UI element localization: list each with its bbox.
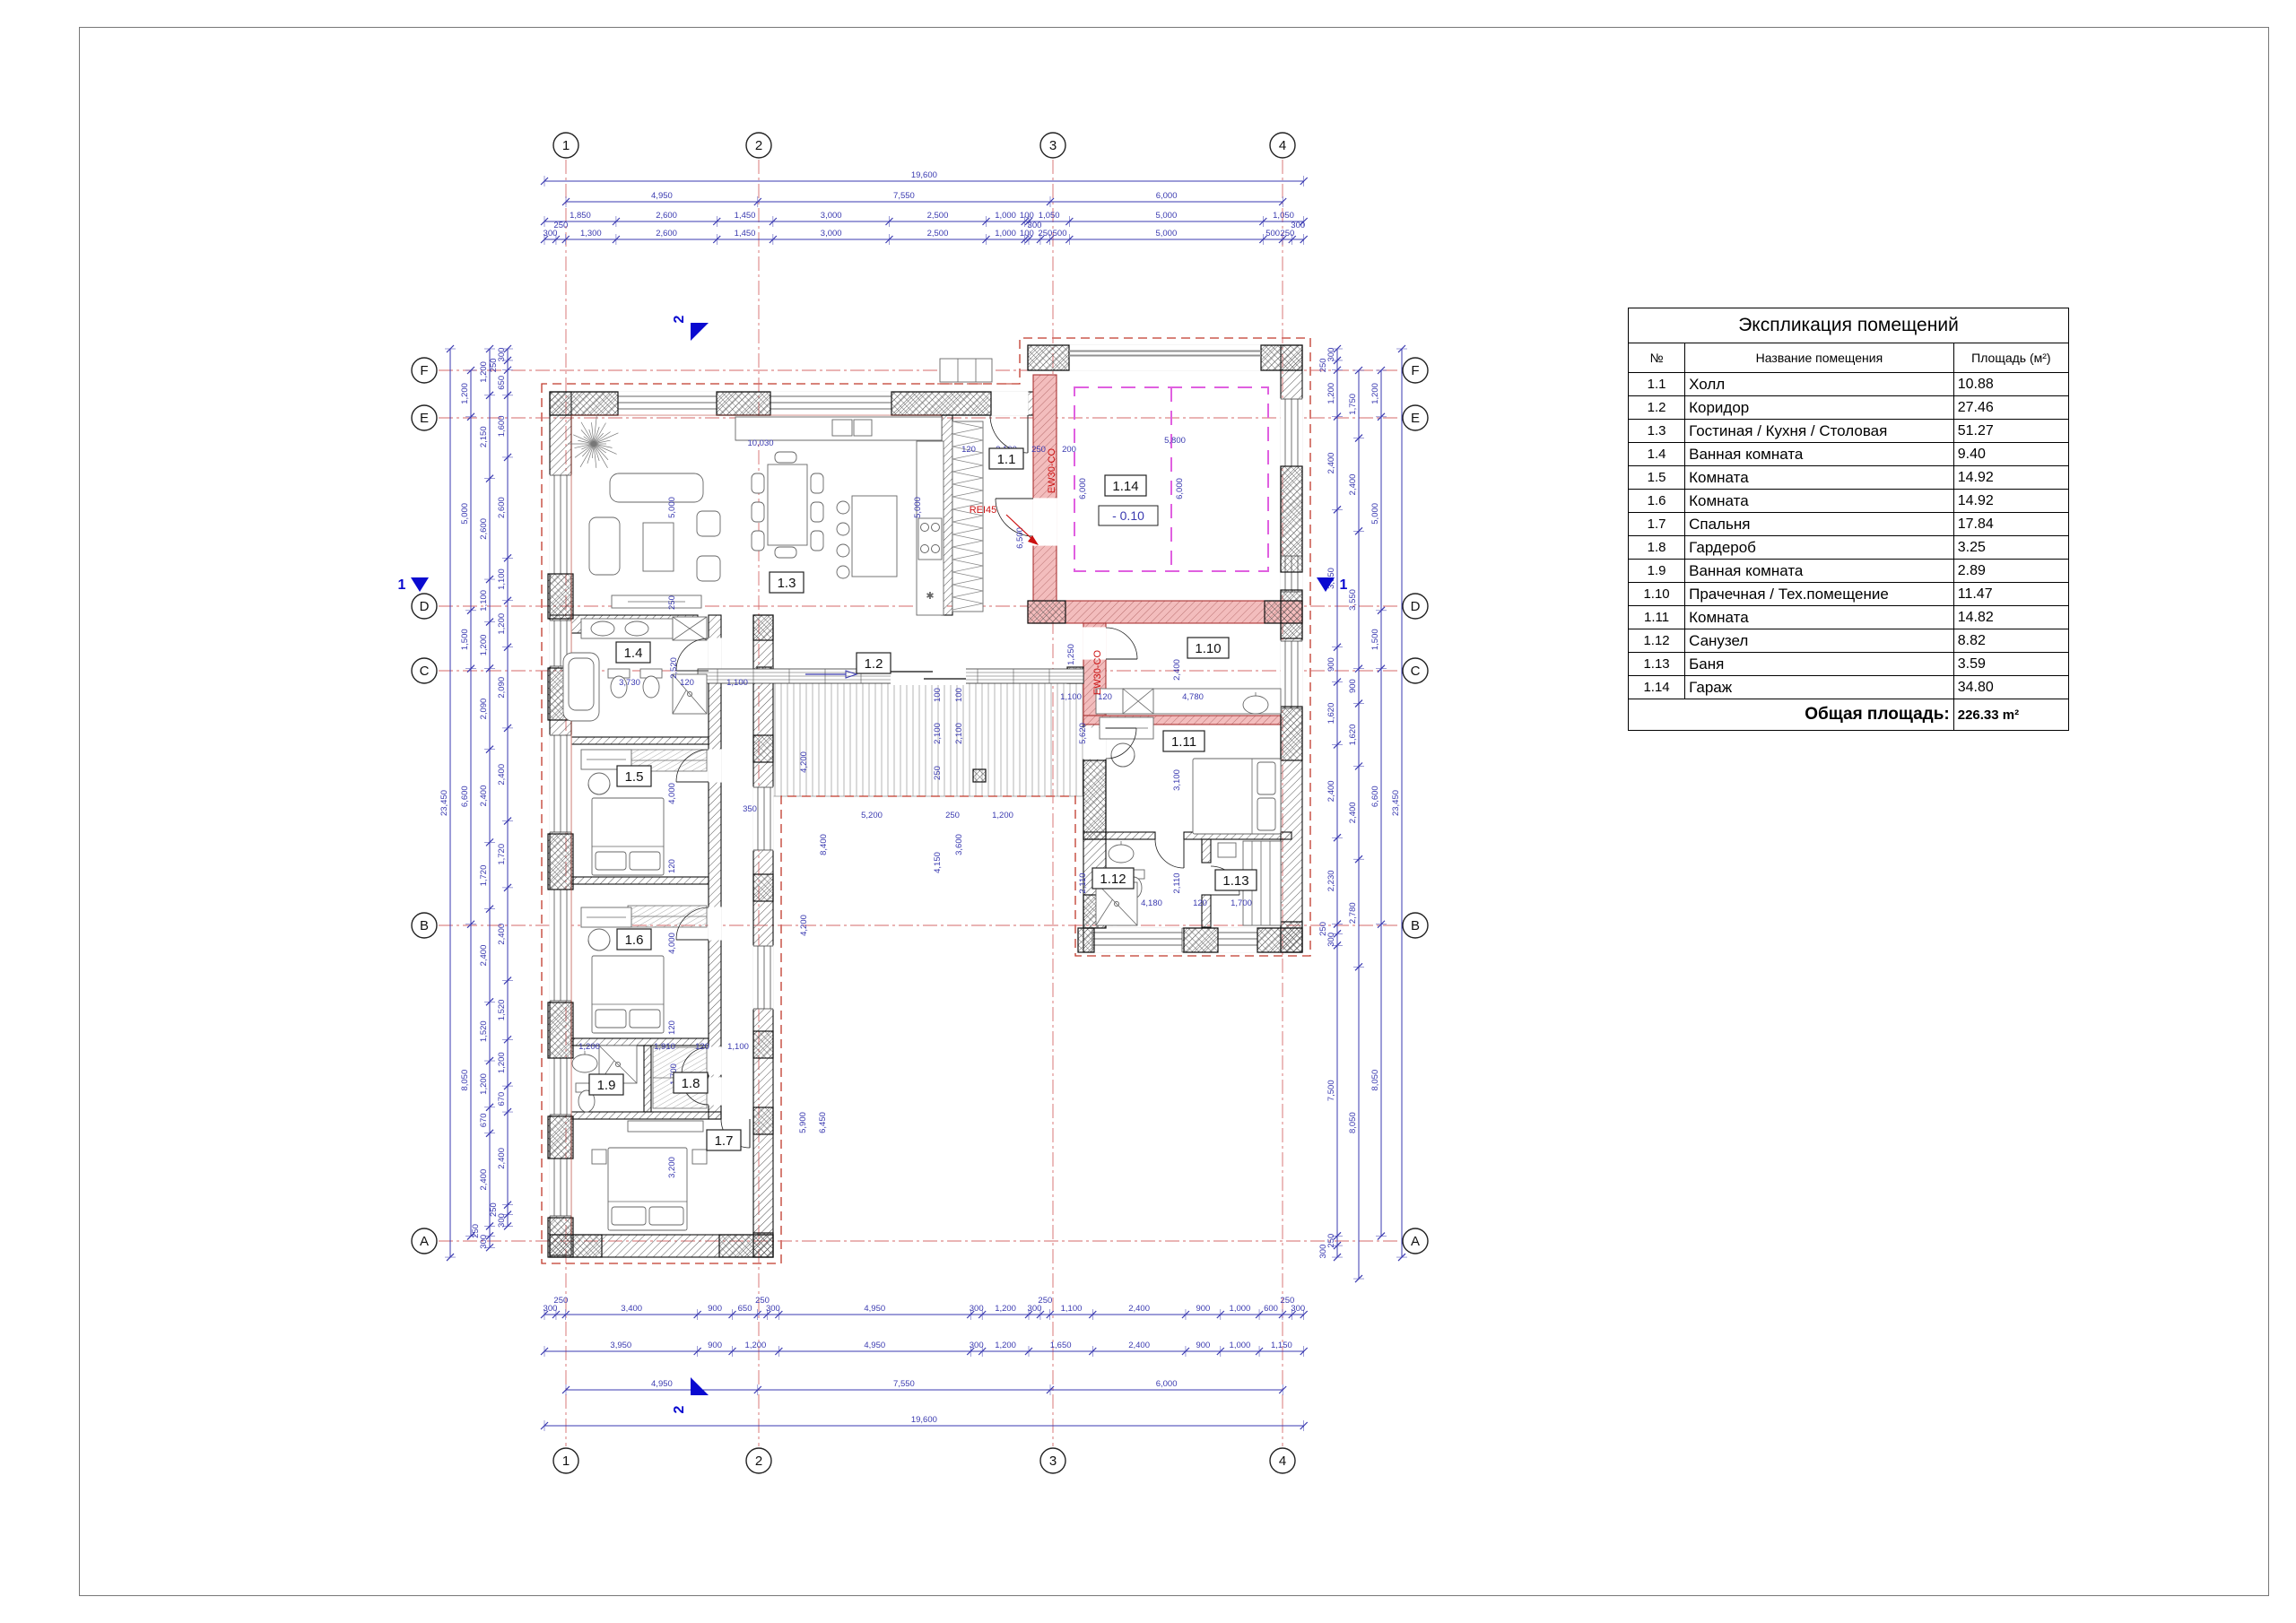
svg-text:1,720: 1,720 [479, 865, 489, 887]
svg-text:2,400: 2,400 [1326, 780, 1336, 802]
svg-text:3,000: 3,000 [821, 229, 842, 239]
svg-text:1.3: 1.3 [778, 576, 796, 591]
svg-text:D: D [420, 599, 430, 614]
svg-text:1.7: 1.7 [715, 1133, 734, 1149]
svg-text:23,450: 23,450 [439, 790, 449, 816]
svg-text:2,400: 2,400 [1348, 474, 1358, 496]
svg-text:1,200: 1,200 [992, 811, 1013, 820]
svg-text:1.6: 1.6 [625, 933, 644, 948]
svg-text:5,620: 5,620 [1078, 723, 1088, 744]
svg-text:6,600: 6,600 [1370, 785, 1380, 807]
svg-text:4,000: 4,000 [667, 933, 677, 954]
table-cell: 1.5 [1629, 466, 1685, 490]
svg-text:300: 300 [497, 1213, 507, 1228]
col-header-area: Площадь (м²) [1953, 343, 2068, 373]
svg-text:120: 120 [680, 678, 694, 688]
svg-text:1,050: 1,050 [1039, 211, 1060, 221]
svg-text:300: 300 [766, 1304, 780, 1314]
svg-text:B: B [1411, 918, 1420, 933]
svg-text:2,110: 2,110 [1078, 872, 1088, 893]
svg-text:4: 4 [1279, 138, 1286, 153]
table-row: 1.3Гостиная / Кухня / Столовая51.27 [1629, 420, 2069, 443]
svg-text:B: B [420, 918, 429, 933]
svg-text:200: 200 [1062, 445, 1076, 455]
svg-text:300: 300 [479, 1235, 489, 1249]
table-row: 1.14Гараж34.80 [1629, 676, 2069, 699]
svg-text:900: 900 [708, 1304, 722, 1314]
svg-text:120: 120 [667, 1020, 677, 1035]
svg-text:F: F [1411, 363, 1419, 378]
svg-text:C: C [420, 664, 430, 679]
svg-text:D: D [1411, 599, 1421, 614]
svg-text:1,050: 1,050 [1273, 211, 1294, 221]
svg-text:900: 900 [708, 1341, 722, 1350]
table-cell: 27.46 [1953, 396, 2068, 420]
svg-text:4,780: 4,780 [1182, 692, 1204, 702]
svg-text:6,000: 6,000 [1156, 191, 1178, 201]
svg-text:1,520: 1,520 [497, 1000, 507, 1021]
svg-text:120: 120 [1193, 898, 1207, 908]
table-cell: 1.6 [1629, 490, 1685, 513]
svg-text:5,000: 5,000 [667, 497, 677, 518]
svg-text:300: 300 [1318, 1245, 1328, 1259]
svg-text:650: 650 [497, 376, 507, 390]
svg-text:7,550: 7,550 [893, 1379, 915, 1389]
svg-text:1,200: 1,200 [460, 383, 470, 404]
svg-text:250: 250 [1038, 229, 1052, 239]
svg-text:- 0.10: - 0.10 [1112, 508, 1144, 523]
svg-text:2,400: 2,400 [479, 1169, 489, 1191]
table-row: 1.13Баня3.59 [1629, 653, 2069, 676]
svg-text:10,030: 10,030 [747, 438, 773, 448]
svg-text:1: 1 [398, 577, 406, 593]
svg-text:1,000: 1,000 [995, 211, 1016, 221]
svg-text:1,000: 1,000 [1230, 1304, 1251, 1314]
svg-text:1,200: 1,200 [995, 1304, 1016, 1314]
svg-text:3,400: 3,400 [621, 1304, 642, 1314]
svg-text:5,200: 5,200 [861, 811, 883, 820]
svg-text:1,000: 1,000 [995, 229, 1016, 239]
svg-text:2,400: 2,400 [497, 764, 507, 785]
table-cell: 1.12 [1629, 629, 1685, 653]
svg-text:1,250: 1,250 [1066, 644, 1076, 665]
table-row: 1.4Ванная комната9.40 [1629, 443, 2069, 466]
svg-text:6,000: 6,000 [1156, 1379, 1178, 1389]
svg-text:1,200: 1,200 [1370, 383, 1380, 404]
table-cell: Комната [1685, 466, 1954, 490]
svg-text:E: E [420, 411, 429, 426]
svg-text:250: 250 [489, 358, 499, 372]
svg-text:300: 300 [970, 1304, 984, 1314]
col-header-number: № [1629, 343, 1685, 373]
svg-text:1,500: 1,500 [460, 629, 470, 650]
table-cell: 1.3 [1629, 420, 1685, 443]
svg-text:4,200: 4,200 [799, 915, 809, 936]
svg-text:5,000: 5,000 [460, 503, 470, 525]
svg-text:C: C [1411, 664, 1421, 679]
svg-text:3: 3 [1049, 138, 1057, 153]
svg-text:2,400: 2,400 [497, 1148, 507, 1169]
table-cell: Баня [1685, 653, 1954, 676]
svg-text:900: 900 [1326, 657, 1336, 672]
table-row: 1.10Прачечная / Тех.помещение11.47 [1629, 583, 2069, 606]
svg-text:1,200: 1,200 [578, 1042, 600, 1052]
svg-text:1,720: 1,720 [497, 844, 507, 865]
svg-text:1.14: 1.14 [1112, 479, 1138, 494]
table-cell: Спальня [1685, 513, 1954, 536]
svg-text:120: 120 [695, 1042, 709, 1052]
table-cell: Комната [1685, 606, 1954, 629]
table-cell: Комната [1685, 490, 1954, 513]
svg-text:1.10: 1.10 [1195, 641, 1221, 656]
svg-text:1,450: 1,450 [735, 211, 756, 221]
svg-text:1,200: 1,200 [995, 1341, 1016, 1350]
table-cell: 11.47 [1953, 583, 2068, 606]
svg-text:1,750: 1,750 [1348, 394, 1358, 415]
svg-text:2,400: 2,400 [479, 945, 489, 967]
svg-text:2,400: 2,400 [479, 785, 489, 807]
svg-text:250: 250 [667, 595, 677, 610]
svg-text:EW30-CO: EW30-CO [1047, 448, 1057, 494]
svg-text:F: F [420, 363, 428, 378]
table-cell: 1.13 [1629, 653, 1685, 676]
svg-text:300: 300 [970, 1341, 984, 1350]
svg-text:2,110: 2,110 [1172, 872, 1182, 893]
svg-text:3,000: 3,000 [821, 211, 842, 221]
svg-text:2,520: 2,520 [669, 657, 679, 679]
svg-text:3,100: 3,100 [1172, 769, 1182, 791]
svg-text:600: 600 [1264, 1304, 1278, 1314]
svg-text:100: 100 [933, 688, 943, 702]
svg-text:8,050: 8,050 [460, 1070, 470, 1091]
table-cell: 3.25 [1953, 536, 2068, 560]
svg-text:1,200: 1,200 [497, 1052, 507, 1073]
svg-text:7,500: 7,500 [1326, 1080, 1336, 1101]
svg-text:1,100: 1,100 [479, 590, 489, 612]
svg-text:2: 2 [755, 138, 762, 153]
svg-text:2,600: 2,600 [656, 211, 677, 221]
svg-text:100: 100 [1020, 211, 1034, 221]
table-cell: Ванная комната [1685, 443, 1954, 466]
svg-text:1,300: 1,300 [580, 229, 602, 239]
svg-text:250: 250 [553, 1296, 568, 1306]
svg-text:250: 250 [553, 221, 568, 230]
svg-text:1.11: 1.11 [1171, 734, 1196, 750]
svg-text:300: 300 [1291, 1304, 1305, 1314]
table-cell: 9.40 [1953, 443, 2068, 466]
table-cell: 1.1 [1629, 373, 1685, 396]
svg-text:2: 2 [755, 1454, 762, 1469]
table-cell: Гостиная / Кухня / Столовая [1685, 420, 1954, 443]
svg-text:2,400: 2,400 [497, 924, 507, 945]
svg-text:120: 120 [961, 445, 976, 455]
svg-text:1,650: 1,650 [1050, 1341, 1072, 1350]
svg-text:670: 670 [479, 1113, 489, 1127]
svg-text:6,600: 6,600 [460, 785, 470, 807]
overlays [1074, 387, 1268, 571]
svg-text:250: 250 [1031, 445, 1046, 455]
svg-text:4,200: 4,200 [799, 751, 809, 773]
svg-text:5,800: 5,800 [1164, 436, 1186, 446]
svg-text:3,550: 3,550 [1348, 589, 1358, 611]
svg-text:6,000: 6,000 [1078, 478, 1088, 499]
table-row: 1.12Санузел8.82 [1629, 629, 2069, 653]
svg-text:900: 900 [1348, 679, 1358, 693]
svg-text:1.8: 1.8 [682, 1076, 700, 1091]
svg-text:2,500: 2,500 [927, 229, 949, 239]
table-cell: 10.88 [1953, 373, 2068, 396]
table-cell: 1.8 [1629, 536, 1685, 560]
svg-text:250: 250 [933, 766, 943, 780]
table-row: 1.2Коридор27.46 [1629, 396, 2069, 420]
svg-text:2,600: 2,600 [497, 497, 507, 518]
table-cell: 1.14 [1629, 676, 1685, 699]
table-row: 1.9Ванная комната2.89 [1629, 560, 2069, 583]
table-row: 1.5Комната14.92 [1629, 466, 2069, 490]
table-cell: 8.82 [1953, 629, 2068, 653]
floor-plan-drawing: ✱ 19,6004,9507,5506,0001,8502,6001,4503,… [0, 0, 2296, 1623]
svg-text:1,100: 1,100 [1060, 692, 1082, 702]
table-cell: 2.89 [1953, 560, 2068, 583]
svg-text:1,150: 1,150 [1271, 1341, 1292, 1350]
svg-text:2,400: 2,400 [1128, 1304, 1150, 1314]
svg-text:2,780: 2,780 [1348, 902, 1358, 924]
svg-text:4,950: 4,950 [864, 1304, 885, 1314]
table-cell: 1.7 [1629, 513, 1685, 536]
svg-text:REI45: REI45 [970, 505, 997, 516]
table-cell: 17.84 [1953, 513, 2068, 536]
svg-text:4,150: 4,150 [933, 852, 943, 873]
svg-text:670: 670 [497, 1092, 507, 1107]
table-row: 1.7Спальня17.84 [1629, 513, 2069, 536]
svg-text:1.9: 1.9 [597, 1078, 616, 1093]
svg-text:900: 900 [1196, 1304, 1210, 1314]
svg-text:5,000: 5,000 [1155, 229, 1177, 239]
svg-text:3: 3 [1049, 1454, 1057, 1469]
svg-text:350: 350 [743, 804, 757, 814]
svg-text:2,230: 2,230 [1326, 870, 1336, 891]
table-cell: 1.9 [1629, 560, 1685, 583]
svg-text:5,000: 5,000 [1370, 503, 1380, 525]
svg-text:4,950: 4,950 [651, 191, 673, 201]
room-labels: 1.11.21.31.41.51.61.71.81.91.101.111.121… [398, 315, 1348, 1413]
svg-text:2,100: 2,100 [933, 723, 943, 744]
svg-text:2,400: 2,400 [1172, 659, 1182, 681]
svg-text:2,400: 2,400 [1128, 1341, 1150, 1350]
svg-text:✱: ✱ [926, 591, 934, 602]
svg-text:3,600: 3,600 [954, 834, 964, 855]
svg-text:3,200: 3,200 [667, 1157, 677, 1178]
table-title: Экспликация помещений [1629, 308, 2069, 343]
svg-text:23,450: 23,450 [1391, 790, 1401, 816]
table-cell: Гараж [1685, 676, 1954, 699]
svg-text:500: 500 [1053, 229, 1067, 239]
table-cell: Коридор [1685, 396, 1954, 420]
table-cell: 14.92 [1953, 466, 2068, 490]
table-cell: Холл [1685, 373, 1954, 396]
table-cell: 1.4 [1629, 443, 1685, 466]
svg-text:1,100: 1,100 [497, 568, 507, 590]
svg-text:1.13: 1.13 [1222, 873, 1248, 889]
total-area-value: 226.33 m² [1953, 699, 2068, 731]
svg-text:1,100: 1,100 [726, 678, 748, 688]
room-schedule-table: Экспликация помещений № Название помещен… [1628, 308, 2069, 731]
svg-text:6,450: 6,450 [818, 1112, 828, 1133]
table-row: 1.11Комната14.82 [1629, 606, 2069, 629]
svg-text:5,000: 5,000 [913, 497, 923, 518]
table-cell: 3.59 [1953, 653, 2068, 676]
svg-text:2,090: 2,090 [497, 677, 507, 699]
svg-text:A: A [1411, 1234, 1420, 1249]
svg-text:1,200: 1,200 [479, 1073, 489, 1095]
svg-text:4,180: 4,180 [1141, 898, 1162, 908]
svg-text:6,000: 6,000 [1175, 478, 1185, 499]
svg-text:1,450: 1,450 [735, 229, 756, 239]
svg-text:1: 1 [1340, 577, 1348, 593]
svg-text:2,500: 2,500 [927, 211, 949, 221]
svg-text:8,050: 8,050 [1348, 1112, 1358, 1133]
svg-text:1,850: 1,850 [570, 211, 591, 221]
svg-text:1,910: 1,910 [654, 1042, 675, 1052]
svg-text:500: 500 [1265, 229, 1280, 239]
svg-text:1,600: 1,600 [497, 416, 507, 438]
table-row: 1.6Комната14.92 [1629, 490, 2069, 513]
svg-text:EW30-CO: EW30-CO [1092, 650, 1103, 696]
svg-text:1,700: 1,700 [1231, 898, 1252, 908]
svg-text:250: 250 [1038, 1296, 1052, 1306]
svg-text:1: 1 [562, 138, 570, 153]
svg-text:2: 2 [672, 315, 687, 323]
svg-text:7,550: 7,550 [893, 191, 915, 201]
svg-text:1,100: 1,100 [727, 1042, 749, 1052]
table-cell: 14.92 [1953, 490, 2068, 513]
svg-text:2,090: 2,090 [479, 699, 489, 720]
svg-text:E: E [1411, 411, 1420, 426]
svg-text:120: 120 [667, 859, 677, 873]
svg-text:250: 250 [1318, 358, 1328, 372]
svg-text:300: 300 [1291, 221, 1305, 230]
table-cell: Прачечная / Тех.помещение [1685, 583, 1954, 606]
table-cell: 1.11 [1629, 606, 1685, 629]
svg-text:2,600: 2,600 [656, 229, 677, 239]
table-cell: Ванная комната [1685, 560, 1954, 583]
svg-text:650: 650 [738, 1304, 752, 1314]
svg-text:2,150: 2,150 [479, 426, 489, 447]
svg-text:1,620: 1,620 [1326, 703, 1336, 725]
svg-text:1,200: 1,200 [479, 361, 489, 383]
svg-text:4,950: 4,950 [864, 1341, 885, 1350]
svg-text:2: 2 [672, 1405, 687, 1413]
svg-text:2,400: 2,400 [1326, 453, 1336, 474]
svg-text:2,600: 2,600 [479, 518, 489, 540]
svg-text:1.1: 1.1 [997, 452, 1016, 467]
svg-text:A: A [420, 1234, 429, 1249]
svg-text:2,100: 2,100 [954, 723, 964, 744]
table-row: 1.1Холл10.88 [1629, 373, 2069, 396]
table-row: 1.8Гардероб3.25 [1629, 536, 2069, 560]
svg-text:1,200: 1,200 [497, 613, 507, 635]
svg-text:3,730: 3,730 [619, 678, 640, 688]
col-header-name: Название помещения [1685, 343, 1954, 373]
svg-text:4: 4 [1279, 1454, 1286, 1469]
svg-text:2,400: 2,400 [1348, 802, 1358, 823]
svg-text:5,900: 5,900 [798, 1112, 808, 1133]
svg-text:3,950: 3,950 [610, 1341, 631, 1350]
svg-text:5,000: 5,000 [1155, 211, 1177, 221]
svg-text:19,600: 19,600 [911, 170, 937, 180]
svg-text:250: 250 [945, 811, 960, 820]
svg-text:1,520: 1,520 [479, 1020, 489, 1042]
svg-text:19,600: 19,600 [911, 1415, 937, 1425]
svg-text:1.12: 1.12 [1100, 872, 1126, 887]
svg-text:8,400: 8,400 [819, 834, 829, 855]
table-cell: Санузел [1685, 629, 1954, 653]
svg-text:900: 900 [1196, 1341, 1210, 1350]
table-cell: 1.2 [1629, 396, 1685, 420]
svg-text:8,050: 8,050 [1370, 1070, 1380, 1091]
svg-text:4,000: 4,000 [667, 783, 677, 804]
svg-text:1.5: 1.5 [625, 769, 644, 785]
table-cell: 51.27 [1953, 420, 2068, 443]
table-cell: 14.82 [1953, 606, 2068, 629]
svg-text:1,500: 1,500 [1370, 629, 1380, 650]
svg-text:1,200: 1,200 [479, 635, 489, 656]
svg-text:100: 100 [954, 688, 964, 702]
svg-text:1,100: 1,100 [1061, 1304, 1083, 1314]
svg-text:1,200: 1,200 [1326, 383, 1336, 404]
svg-text:1,200: 1,200 [745, 1341, 767, 1350]
table-cell: Гардероб [1685, 536, 1954, 560]
svg-text:1.4: 1.4 [624, 646, 643, 661]
svg-text:1,000: 1,000 [1230, 1341, 1251, 1350]
svg-text:4,950: 4,950 [651, 1379, 673, 1389]
svg-text:1,620: 1,620 [1348, 725, 1358, 746]
svg-text:1.2: 1.2 [865, 656, 883, 672]
total-area-label: Общая площадь: [1629, 699, 1954, 731]
svg-text:300: 300 [1326, 933, 1336, 947]
svg-text:1: 1 [562, 1454, 570, 1469]
table-cell: 1.10 [1629, 583, 1685, 606]
table-cell: 34.80 [1953, 676, 2068, 699]
